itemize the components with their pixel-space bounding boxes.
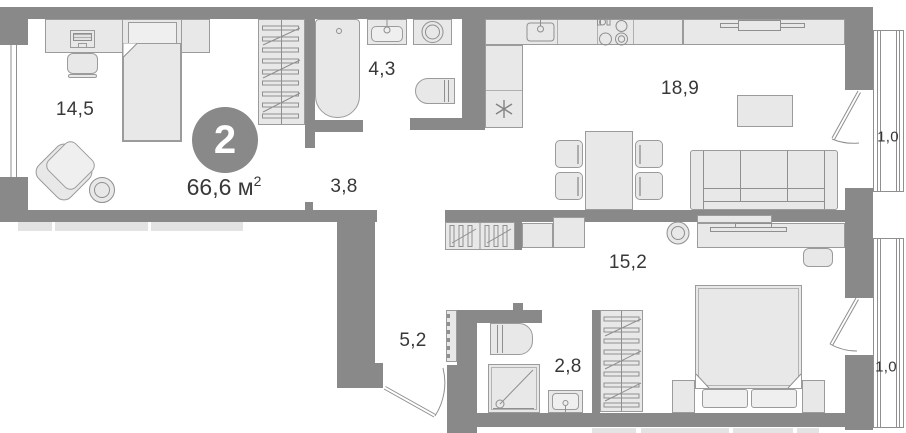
entrance-door-icon [384, 368, 445, 417]
dining-chair [635, 140, 663, 168]
window-icon [11, 45, 17, 177]
coffee-table [737, 95, 793, 127]
mattress-inner-line [698, 288, 799, 386]
wall-segment [477, 310, 542, 323]
sofa [690, 150, 838, 210]
pillow [128, 22, 177, 45]
room-label-bedroom: 15,2 [609, 252, 647, 274]
facade-edge [151, 222, 243, 231]
monitor-screen-icon [73, 33, 92, 41]
facade-edge [592, 428, 636, 433]
wall-segment [513, 303, 523, 310]
facade-edge [18, 222, 52, 231]
desk [697, 223, 845, 248]
dining-table [585, 131, 633, 210]
facade-edge [55, 222, 148, 231]
cabinet [522, 223, 553, 248]
balcony-door-icon [830, 298, 859, 351]
total-area-value: 66,6 м [187, 174, 254, 200]
monitor-stand-icon [78, 43, 87, 48]
wall-segment [305, 202, 313, 210]
office-chair-base [68, 74, 97, 78]
sink-basin [371, 26, 403, 42]
wall-segment [845, 188, 873, 298]
facade-edge [797, 428, 819, 433]
towel-radiator [415, 78, 455, 104]
room-label-balcony-top: 1,0 [877, 129, 899, 146]
sink-basin [552, 393, 579, 410]
wall-segment [0, 7, 873, 19]
closet-hanger-rail [445, 222, 515, 250]
wall-segment [515, 222, 522, 250]
dining-chair [555, 172, 583, 200]
bathtub [315, 19, 360, 118]
dresser [553, 217, 585, 248]
wardrobe [600, 310, 643, 412]
room-label-living-room: 14,5 [56, 99, 94, 121]
room-label-bathroom: 4,3 [368, 59, 395, 81]
room-label-corridor: 5,2 [399, 330, 426, 352]
wall-segment [462, 7, 485, 128]
office-chair [67, 53, 98, 74]
wall-segment [337, 363, 383, 388]
room-label-shower-room: 2,8 [554, 356, 581, 378]
shoe-shelf [446, 310, 457, 362]
nightstand [672, 380, 695, 413]
room-label-balcony-bottom: 1,0 [875, 359, 897, 376]
wall-segment [445, 210, 845, 222]
pillow [751, 389, 797, 408]
tv-console [683, 19, 845, 45]
facade-edge [733, 428, 793, 433]
kitchen-counter-column [485, 45, 523, 128]
shower-inner-line [491, 367, 537, 410]
washing-machine [413, 19, 452, 45]
facade-edge [641, 428, 729, 433]
room-count-badge: 2 [192, 107, 258, 173]
wall-segment [313, 120, 363, 132]
balcony-frame-bottom [874, 239, 904, 428]
bed-blanket [123, 43, 181, 141]
wall-segment [0, 7, 28, 45]
room-label-hallway: 3,8 [330, 176, 357, 198]
washing-machine [490, 323, 533, 355]
kitchen-counter [485, 19, 683, 45]
pillow [702, 389, 748, 408]
dining-chair [555, 140, 583, 168]
balcony-frame-top [874, 31, 904, 192]
wall-segment [447, 413, 873, 427]
wall-segment [0, 210, 377, 222]
balcony-door-icon [832, 91, 861, 143]
wall-segment [592, 310, 600, 413]
wall-segment [337, 222, 375, 363]
desk-chair [803, 248, 833, 267]
dining-chair [635, 172, 663, 200]
nightstand [802, 380, 825, 413]
side-table-icon [90, 178, 115, 203]
wall-segment [845, 7, 873, 90]
room-label-kitchen-living: 18,9 [661, 78, 699, 100]
total-area-label: 66,6 м2 [187, 173, 262, 201]
stool-icon [667, 222, 689, 244]
wardrobe [258, 19, 305, 125]
wall-shelf [697, 215, 772, 223]
total-area-sup: 2 [254, 173, 262, 189]
wall-segment [845, 355, 873, 430]
apartment-floor-plan: div[data-name="armchair-back"]{transform… [0, 0, 906, 433]
